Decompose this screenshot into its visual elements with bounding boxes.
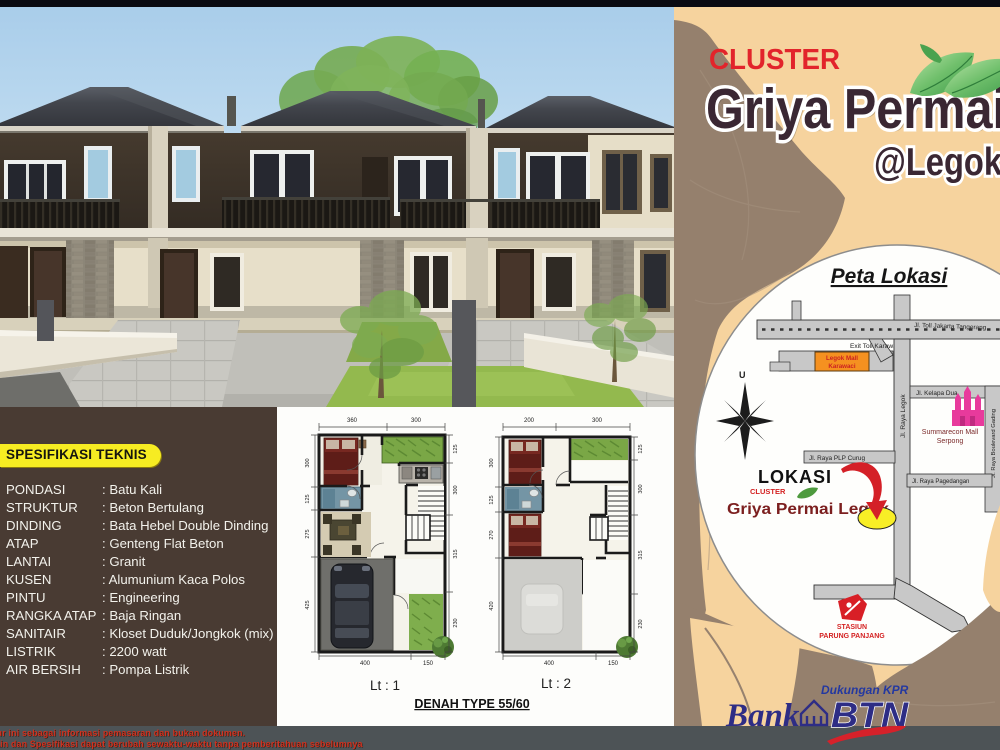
svg-text:275: 275 [305,529,311,538]
svg-text:125: 125 [305,494,311,503]
svg-text:Summarecon Mall: Summarecon Mall [922,429,979,436]
svg-text:Dukungan KPR: Dukungan KPR [821,683,909,697]
svg-text:Jl. Raya PLP Curug: Jl. Raya PLP Curug [809,455,865,462]
svg-text:Jl. Raya Pagedangan: Jl. Raya Pagedangan [912,479,969,485]
svg-text:420: 420 [489,601,495,610]
svg-text:Peta Lokasi: Peta Lokasi [831,265,949,288]
svg-text:300: 300 [453,485,459,494]
svg-text:Bank: Bank [725,698,800,734]
svg-text:DENAH TYPE 55/60: DENAH TYPE 55/60 [414,697,529,711]
svg-text:315: 315 [638,550,644,559]
svg-text:125: 125 [638,444,644,453]
svg-text:PARUNG PANJANG: PARUNG PANJANG [819,633,885,640]
svg-text:300: 300 [305,458,311,467]
svg-text:300: 300 [411,418,422,424]
svg-text:300: 300 [638,484,644,493]
svg-text:Jl. Raya Legok: Jl. Raya Legok [900,394,907,438]
svg-text:U: U [739,370,746,380]
svg-text:Jl. Kelapa Dua: Jl. Kelapa Dua [916,390,958,397]
svg-text:230: 230 [638,619,644,628]
svg-text:Jl. Raya Boulevard Gading: Jl. Raya Boulevard Gading [991,409,997,478]
svg-text:Serpong: Serpong [937,438,964,445]
svg-text:150: 150 [608,661,619,667]
svg-text:300: 300 [592,418,603,424]
svg-text:425: 425 [305,600,311,609]
svg-text:300: 300 [489,458,495,467]
svg-text:400: 400 [544,661,555,667]
svg-text:Lt : 1: Lt : 1 [370,678,400,693]
svg-text:270: 270 [489,530,495,539]
svg-text:200: 200 [524,418,535,424]
svg-text:315: 315 [453,549,459,558]
svg-text:125: 125 [453,444,459,453]
svg-text:LOKASI: LOKASI [758,467,832,487]
svg-text:STASIUN: STASIUN [837,624,867,631]
svg-text:360: 360 [347,418,358,424]
svg-text:125: 125 [489,495,495,504]
svg-text:Legok Mall: Legok Mall [826,355,858,362]
svg-text:CLUSTER: CLUSTER [709,44,840,76]
svg-text:150: 150 [423,661,434,667]
svg-text:Karawaci: Karawaci [828,363,855,370]
svg-text:CLUSTER: CLUSTER [750,487,786,496]
svg-text:@Legok: @Legok [874,141,1000,184]
svg-text:Lt : 2: Lt : 2 [541,676,571,691]
svg-text:400: 400 [360,661,371,667]
svg-text:230: 230 [453,618,459,627]
